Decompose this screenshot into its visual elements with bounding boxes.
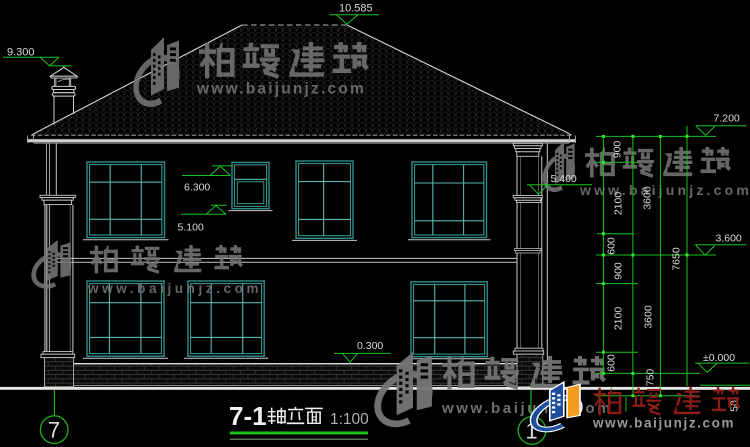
svg-text:2100: 2100 (613, 192, 625, 216)
svg-text:900: 900 (612, 141, 624, 159)
svg-text:7-1: 7-1 (229, 401, 267, 431)
svg-text:1:100: 1:100 (330, 411, 369, 428)
svg-text:www.baijunjz.com: www.baijunjz.com (87, 281, 262, 296)
svg-text:7: 7 (48, 418, 60, 443)
svg-text:3600: 3600 (642, 186, 654, 210)
svg-text:www.baijunjz.com: www.baijunjz.com (441, 400, 613, 417)
svg-text:10.585: 10.585 (339, 3, 373, 15)
svg-text:3600: 3600 (643, 305, 655, 329)
svg-text:9.300: 9.300 (7, 47, 35, 59)
svg-text:3.600: 3.600 (716, 233, 742, 245)
svg-text:7650: 7650 (671, 247, 683, 271)
svg-text:5.100: 5.100 (178, 222, 204, 234)
svg-text:600: 600 (606, 354, 618, 372)
svg-text:±0.000: ±0.000 (703, 352, 735, 364)
svg-text:6.300: 6.300 (184, 182, 210, 194)
svg-text:0.300: 0.300 (357, 340, 383, 352)
svg-text:900: 900 (613, 262, 625, 280)
svg-text:www.baijunjz.com: www.baijunjz.com (579, 182, 750, 198)
svg-text:5.400: 5.400 (551, 173, 577, 185)
svg-text:7.200: 7.200 (714, 113, 740, 125)
svg-text:2100: 2100 (613, 307, 625, 331)
svg-text:600: 600 (606, 237, 618, 255)
svg-text:750: 750 (645, 369, 657, 387)
svg-text:www.baijunjz.com: www.baijunjz.com (592, 416, 735, 431)
svg-text:www.baijunjz.com: www.baijunjz.com (196, 81, 366, 98)
